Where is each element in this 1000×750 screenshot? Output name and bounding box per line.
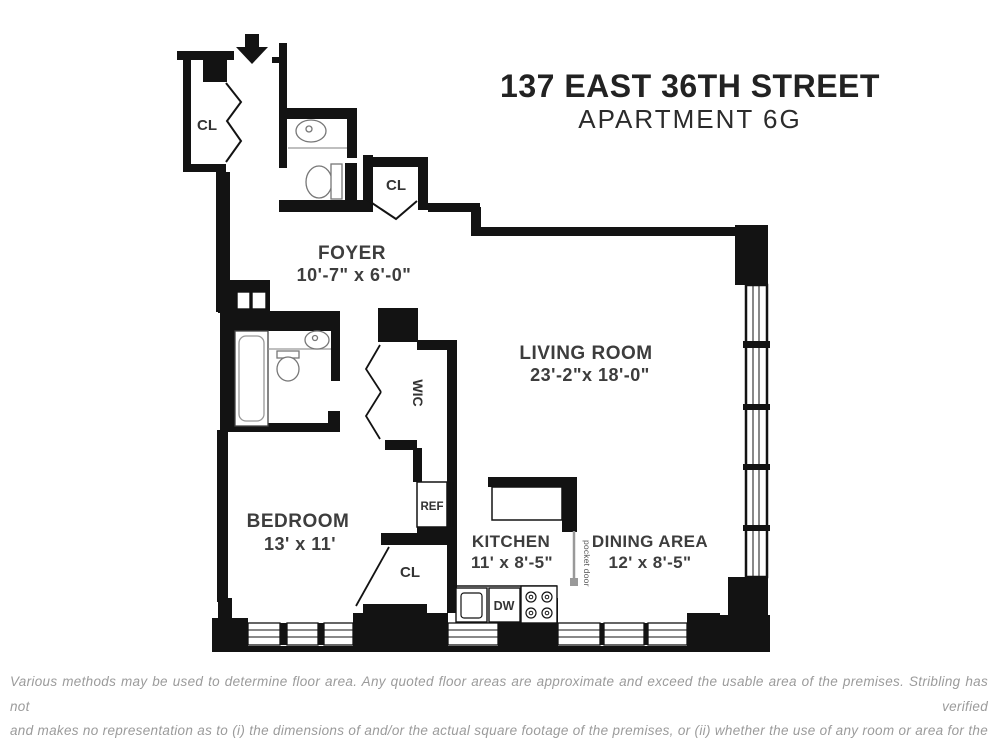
- door-closet1-bifold: [226, 83, 241, 162]
- room-label-living: LIVING ROOM: [519, 343, 652, 364]
- wall-se-corner-lower: [720, 615, 770, 648]
- wall-wic-top-block: [378, 308, 418, 342]
- closet2-label: CL: [386, 177, 406, 194]
- room-dims-bedroom: 13' x 11': [264, 534, 336, 554]
- wall-bottom-right: [687, 613, 720, 648]
- closet1-label: CL: [197, 117, 217, 134]
- wic-label: WIC: [410, 379, 426, 406]
- wall-bedroom-left: [217, 430, 228, 602]
- toilet-bowl-icon: [306, 166, 332, 198]
- halfbath-fixtures: [288, 120, 347, 199]
- toilet-tank-icon: [331, 164, 342, 199]
- sink-drain-icon: [313, 336, 318, 341]
- wall-closet1-top: [177, 51, 234, 60]
- wall-closet1-chunk: [203, 60, 227, 82]
- wall-closet2-right: [418, 165, 428, 210]
- window-bath2-pane1: [237, 292, 250, 309]
- burner-dot: [529, 595, 533, 599]
- wall-sw-corner: [212, 618, 248, 648]
- burner-dot: [545, 595, 549, 599]
- window-band-right: [743, 285, 770, 577]
- wall-counter-top-bar: [488, 477, 577, 487]
- door-wic-lower: [366, 392, 381, 439]
- window-right-mullion3: [743, 464, 770, 470]
- window-band-bottom: [248, 623, 687, 645]
- mullion: [280, 623, 287, 645]
- room-label-kitchen: KITCHEN: [472, 532, 550, 551]
- burner-dot: [545, 611, 549, 615]
- bathtub-inner: [239, 336, 264, 421]
- wall-closet1-left: [183, 60, 191, 172]
- door-closet3: [356, 547, 389, 606]
- room-label-bedroom: BEDROOM: [247, 511, 350, 532]
- room-dims-dining: 12' x 8'-5": [609, 553, 692, 572]
- wall-halfbath-bottom: [279, 200, 363, 212]
- room-dims-living: 23'-2"x 18'-0": [530, 365, 650, 385]
- wall-halfbath-top: [287, 108, 353, 119]
- window-bedroom-1: [248, 623, 280, 645]
- kitchen-counter-block: [492, 487, 562, 520]
- window-bedroom-2: [287, 623, 318, 645]
- window-right-mullion2: [743, 404, 770, 410]
- wall-bath2-left: [220, 313, 235, 428]
- wall-bath2-right-upper: [331, 311, 340, 381]
- wall-counter-right: [562, 487, 577, 532]
- stove-icon: [521, 586, 557, 623]
- wall-kitchen-left: [447, 340, 457, 613]
- window-right-glass: [746, 285, 767, 577]
- refrigerator-label: REF: [421, 501, 444, 513]
- wall-closet3-step: [363, 604, 427, 615]
- disclaimer: Various methods may be used to determine…: [10, 670, 988, 750]
- wall-entry-jamb: [279, 43, 287, 168]
- wall-wic-bottom: [385, 440, 417, 450]
- wall-bottom-mid-left: [353, 613, 448, 648]
- mullion: [600, 623, 604, 645]
- entry-arrow-shaft: [245, 34, 259, 47]
- room-label-dining: DINING AREA: [592, 532, 708, 551]
- window-dining-2: [604, 623, 644, 645]
- door-wic-upper: [366, 345, 381, 392]
- pocket-door-label: pocket door: [582, 540, 592, 587]
- wall-halfbath-right-upper: [347, 108, 357, 158]
- sink-drain-icon: [306, 126, 312, 132]
- wall-living-top: [477, 227, 737, 236]
- floorplan-drawing: FOYER 10'-7" x 6'-0" LIVING ROOM 23'-2"x…: [0, 0, 1000, 750]
- kitchen-sink-basin: [461, 593, 482, 618]
- window-kitchen: [448, 623, 498, 645]
- toilet-bowl-icon: [277, 357, 299, 381]
- room-label-foyer: FOYER: [318, 243, 386, 264]
- disclaimer-line2: and makes no representation as to (i) th…: [10, 719, 988, 750]
- window-bath2-pane2: [252, 292, 266, 309]
- floorplan-page: 137 EAST 36TH STREET APARTMENT 6G: [0, 0, 1000, 750]
- window-right-mullion1: [743, 341, 770, 348]
- mullion: [644, 623, 648, 645]
- wall-entry-tick: [272, 57, 279, 63]
- door-closet2: [366, 199, 417, 219]
- closet3-label: CL: [400, 564, 420, 581]
- wall-bath2-top: [235, 311, 340, 331]
- entry-arrow-head: [236, 47, 268, 64]
- wall-ne-corner: [735, 225, 768, 285]
- dishwasher-label: DW: [494, 599, 515, 613]
- window-bedroom-3: [324, 623, 353, 645]
- room-dims-kitchen: 11' x 8'-5": [471, 553, 553, 572]
- wall-wic-step: [413, 448, 422, 482]
- disclaimer-line1: Various methods may be used to determine…: [10, 670, 988, 719]
- entry-arrow-icon: [236, 34, 268, 64]
- window-dining-3: [648, 623, 687, 645]
- wall-bottom-baseline: [212, 646, 770, 652]
- bath2-fixtures: [235, 331, 331, 426]
- mullion: [318, 623, 324, 645]
- window-right-mullion4: [743, 525, 770, 531]
- burner-dot: [529, 611, 533, 615]
- window-dining-1: [558, 623, 600, 645]
- wall-closet3-top: [381, 533, 447, 545]
- pocket-door-stop: [570, 578, 578, 586]
- wall-halfbath-right-lower: [345, 163, 357, 200]
- wall-closet1-bottom: [183, 164, 226, 172]
- room-dims-foyer: 10'-7" x 6'-0": [297, 265, 412, 285]
